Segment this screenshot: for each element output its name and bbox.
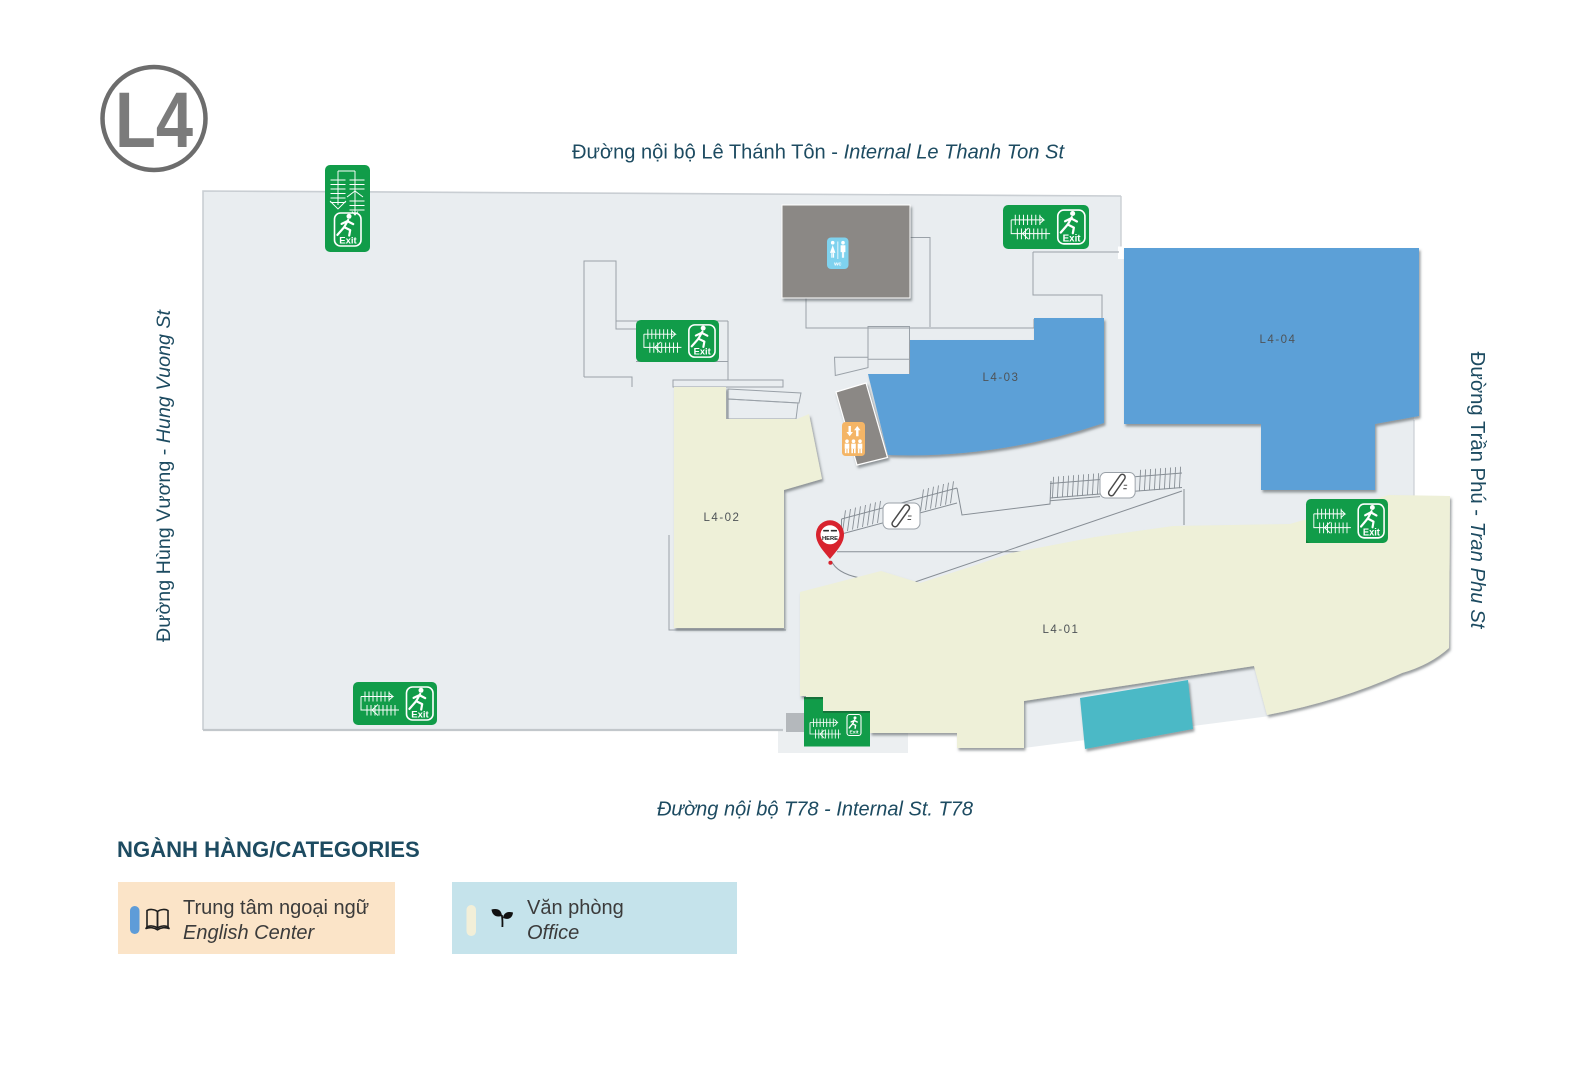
svg-text:wc: wc xyxy=(833,262,841,268)
svg-text:Đường nội bộ Lê Thánh Tôn - In: Đường nội bộ Lê Thánh Tôn - Internal Le … xyxy=(572,142,1066,164)
svg-text:L4: L4 xyxy=(115,75,193,164)
svg-text:Đường Trần Phú - Tran Phu St: Đường Trần Phú - Tran Phu St xyxy=(1466,352,1488,630)
svg-text:L4-02: L4-02 xyxy=(704,512,741,524)
svg-text:Đường Hùng Vương - Hung Vuong: Đường Hùng Vương - Hung Vuong St xyxy=(153,308,175,642)
svg-text:Đường nội bộ T78 - Internal St: Đường nội bộ T78 - Internal St. T78 xyxy=(657,799,973,821)
svg-text:L4-03: L4-03 xyxy=(983,372,1020,384)
svg-text:Trung tâm ngoại ngữ: Trung tâm ngoại ngữ xyxy=(183,897,369,919)
svg-text:Văn phòng: Văn phòng xyxy=(527,897,624,919)
svg-text:Exit: Exit xyxy=(850,730,859,736)
svg-text:L4-01: L4-01 xyxy=(1043,624,1080,636)
svg-text:English Center: English Center xyxy=(183,922,316,944)
svg-text:Office: Office xyxy=(527,922,579,944)
svg-text:NGÀNH HÀNG/CATEGORIES: NGÀNH HÀNG/CATEGORIES xyxy=(117,837,420,862)
svg-text:HERE: HERE xyxy=(822,536,838,542)
svg-text:L4-04: L4-04 xyxy=(1260,334,1297,346)
